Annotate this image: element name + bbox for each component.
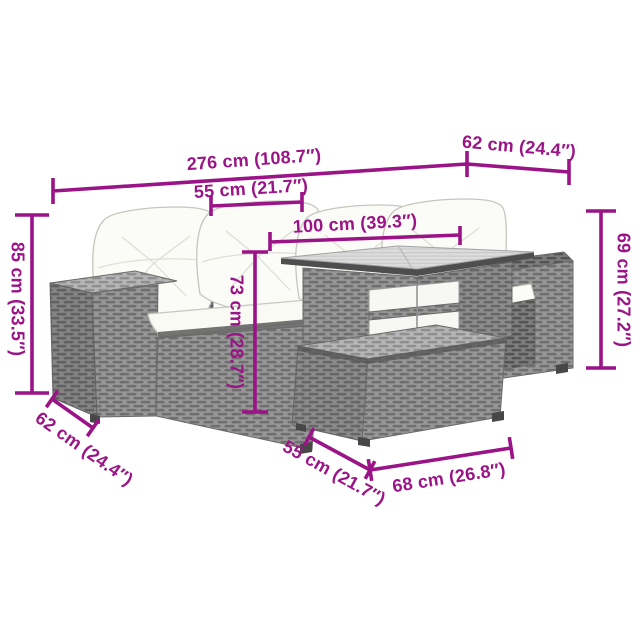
dim-side-height-line [586, 211, 616, 368]
furniture-illustration [0, 0, 640, 640]
ottoman [292, 325, 506, 441]
dim-label-table-height: 73 cm (28.7″) [226, 275, 247, 389]
dim-top-depth-line [467, 159, 569, 185]
dim-label-sofa-height: 85 cm (33.5″) [7, 242, 28, 356]
dim-label-side-height: 69 cm (27.2″) [613, 233, 634, 347]
dimension-diagram: 276 cm (108.7″) 62 cm (24.4″) 55 cm (21.… [0, 0, 640, 640]
